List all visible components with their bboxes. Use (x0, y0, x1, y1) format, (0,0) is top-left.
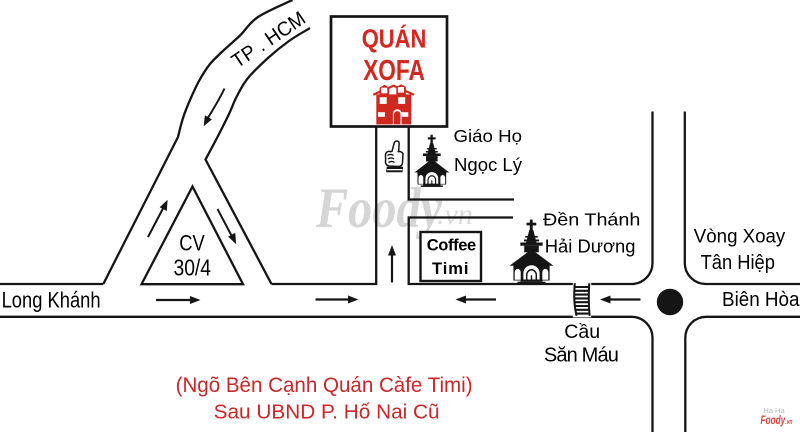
svg-text:Cầu: Cầu (564, 321, 600, 343)
svg-text:Ha Ha: Ha Ha (763, 406, 785, 415)
svg-text:Hải Dương: Hải Dương (545, 236, 636, 256)
svg-text:Biên Hòa: Biên Hòa (722, 289, 800, 311)
svg-text:Sau UBND P. Hố Nai Cũ: Sau UBND P. Hố Nai Cũ (214, 401, 440, 424)
svg-text:(Ngõ Bên Cạnh Quán Càfe Timi): (Ngõ Bên Cạnh Quán Càfe Timi) (176, 374, 473, 397)
svg-text:Long Khánh: Long Khánh (2, 288, 101, 313)
svg-text:Săn Máu: Săn Máu (544, 345, 619, 367)
svg-text:Giáo Họ: Giáo Họ (454, 126, 523, 146)
svg-text:CV: CV (179, 231, 205, 256)
svg-text:QUÁN: QUÁN (362, 24, 427, 54)
svg-text:XOFA: XOFA (363, 55, 425, 87)
svg-text:Tân Hiệp: Tân Hiệp (701, 252, 775, 274)
svg-text:Vòng Xoay: Vòng Xoay (694, 226, 786, 247)
svg-text:30/4: 30/4 (174, 254, 212, 280)
svg-text:.vn: .vn (437, 198, 473, 231)
svg-text:Coffee: Coffee (427, 236, 477, 254)
svg-text:Đền Thánh: Đền Thánh (543, 210, 640, 230)
svg-text:Ngọc Lý: Ngọc Lý (454, 155, 522, 175)
svg-text:Timi: Timi (432, 260, 469, 278)
